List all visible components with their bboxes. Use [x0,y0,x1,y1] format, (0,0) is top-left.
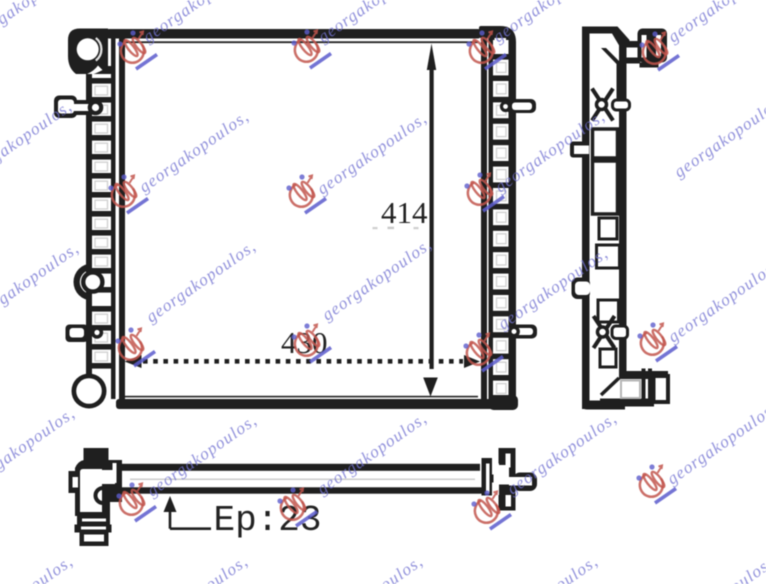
svg-text:414: 414 [381,195,428,230]
